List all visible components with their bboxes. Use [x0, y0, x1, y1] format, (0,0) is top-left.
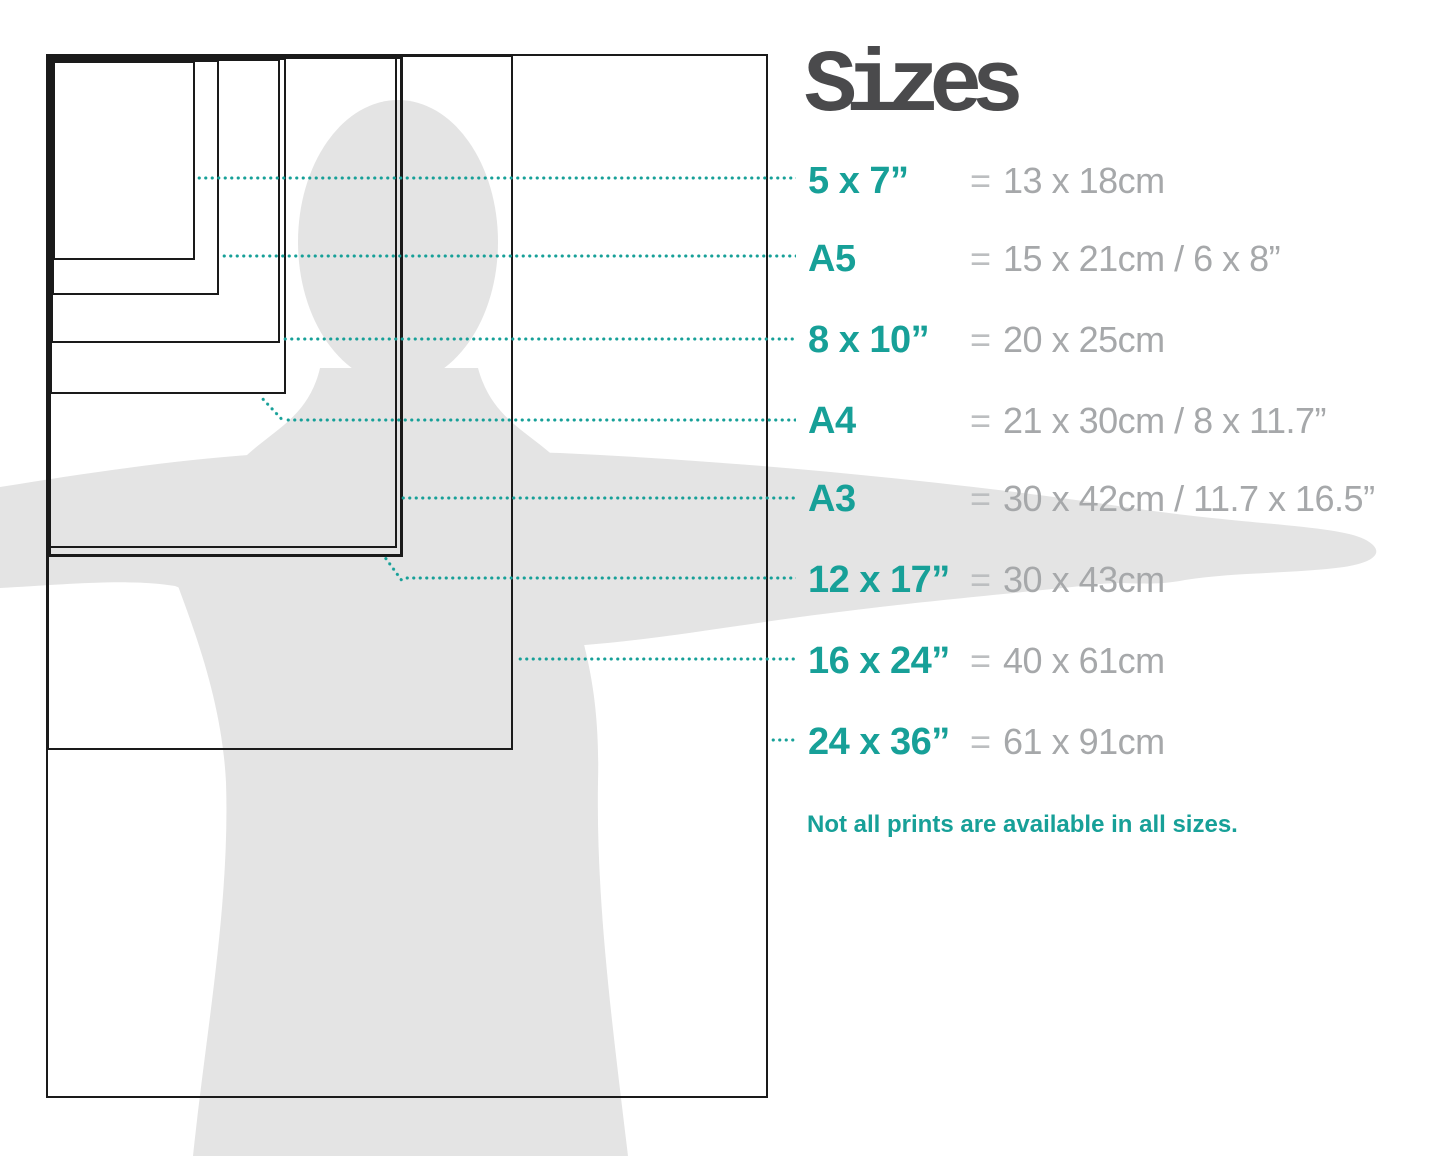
size-conversion: 21 x 30cm / 8 x 11.7”: [1003, 400, 1326, 442]
size-conversion: 40 x 61cm: [1003, 640, 1165, 682]
size-label: A4: [808, 400, 970, 443]
size-conversion: 20 x 25cm: [1003, 319, 1165, 361]
leader-12x17: [404, 576, 796, 580]
size-label: 24 x 36”: [808, 721, 970, 764]
availability-note: Not all prints are available in all size…: [807, 811, 1238, 839]
size-conversion: 61 x 91cm: [1003, 721, 1165, 763]
leader-a5: [221, 254, 796, 258]
size-label: A3: [808, 478, 970, 521]
leader-5x7: [196, 176, 796, 180]
equals-sign: =: [970, 319, 991, 361]
leader-16x24: [517, 657, 796, 661]
leader-24x36: [770, 738, 796, 742]
size-label: 8 x 10”: [808, 319, 970, 362]
size-label: 5 x 7”: [808, 160, 970, 203]
size-row-8x10: 8 x 10” = 20 x 25cm: [808, 318, 1428, 362]
size-label: A5: [808, 238, 970, 281]
size-row-12x17: 12 x 17” = 30 x 43cm: [808, 558, 1428, 602]
size-conversion: 30 x 42cm / 11.7 x 16.5”: [1003, 478, 1375, 520]
size-row-a5: A5 = 15 x 21cm / 6 x 8”: [808, 237, 1428, 281]
size-conversion: 30 x 43cm: [1003, 559, 1165, 601]
leader-a3: [400, 496, 796, 500]
size-row-5x7: 5 x 7” = 13 x 18cm: [808, 159, 1428, 203]
size-conversion: 15 x 21cm / 6 x 8”: [1003, 238, 1280, 280]
equals-sign: =: [970, 721, 991, 763]
size-guide-infographic: Sizes 5 x 7” = 13 x 18cm A5 = 15 x 21cm …: [0, 0, 1445, 1156]
size-row-a3: A3 = 30 x 42cm / 11.7 x 16.5”: [808, 477, 1428, 521]
size-row-16x24: 16 x 24” = 40 x 61cm: [808, 639, 1428, 683]
equals-sign: =: [970, 478, 991, 520]
size-conversion: 13 x 18cm: [1003, 160, 1165, 202]
equals-sign: =: [970, 559, 991, 601]
size-label: 16 x 24”: [808, 640, 970, 683]
page-title: Sizes: [804, 44, 1013, 132]
leader-8x10: [282, 337, 796, 341]
equals-sign: =: [970, 160, 991, 202]
size-rect-5x7: [53, 61, 195, 260]
size-label: 12 x 17”: [808, 559, 970, 602]
equals-sign: =: [970, 400, 991, 442]
equals-sign: =: [970, 238, 991, 280]
size-row-a4: A4 = 21 x 30cm / 8 x 11.7”: [808, 399, 1428, 443]
equals-sign: =: [970, 640, 991, 682]
size-row-24x36: 24 x 36” = 61 x 91cm: [808, 720, 1428, 764]
leader-a4: [285, 418, 796, 422]
